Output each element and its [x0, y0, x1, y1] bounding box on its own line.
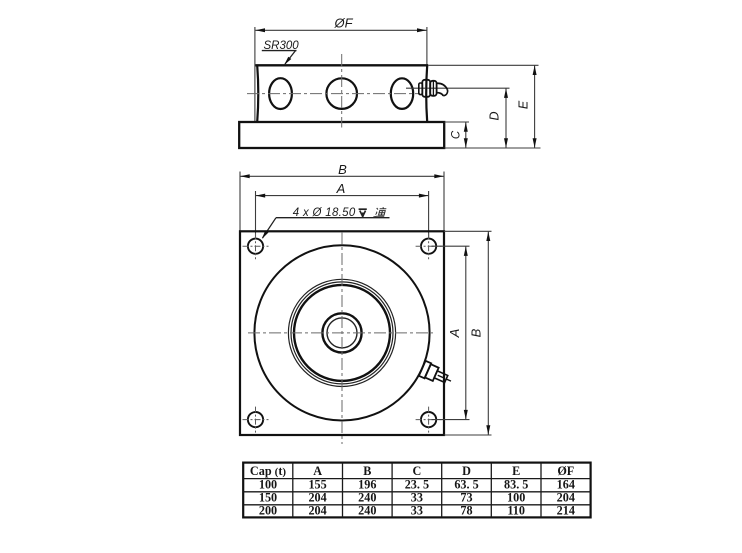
svg-text:78: 78 — [460, 504, 472, 518]
svg-text:A: A — [447, 329, 462, 339]
svg-text:Cap (t): Cap (t) — [250, 464, 286, 478]
svg-text:B: B — [363, 464, 371, 478]
svg-text:110: 110 — [507, 504, 525, 518]
svg-text:B: B — [338, 162, 347, 177]
svg-text:23. 5: 23. 5 — [405, 478, 429, 492]
svg-text:164: 164 — [557, 478, 575, 492]
svg-text:A: A — [336, 181, 346, 196]
svg-text:240: 240 — [358, 504, 376, 518]
svg-text:200: 200 — [259, 504, 277, 518]
svg-text:B: B — [469, 328, 484, 337]
svg-text:D: D — [487, 111, 501, 120]
svg-text:ØF: ØF — [557, 464, 574, 478]
svg-text:196: 196 — [358, 478, 376, 492]
svg-text:155: 155 — [308, 478, 326, 492]
svg-text:83. 5: 83. 5 — [504, 478, 528, 492]
svg-text:E: E — [517, 100, 531, 109]
svg-text:ØF: ØF — [333, 16, 353, 31]
svg-text:C: C — [450, 130, 462, 139]
svg-text:33: 33 — [411, 504, 423, 518]
svg-text:63. 5: 63. 5 — [454, 478, 478, 492]
svg-text:E: E — [512, 464, 520, 478]
svg-text:204: 204 — [308, 504, 326, 518]
svg-text:C: C — [412, 464, 421, 478]
svg-text:A: A — [313, 464, 322, 478]
svg-text:100: 100 — [259, 478, 277, 492]
svg-text:214: 214 — [557, 504, 575, 518]
svg-text:D: D — [462, 464, 471, 478]
